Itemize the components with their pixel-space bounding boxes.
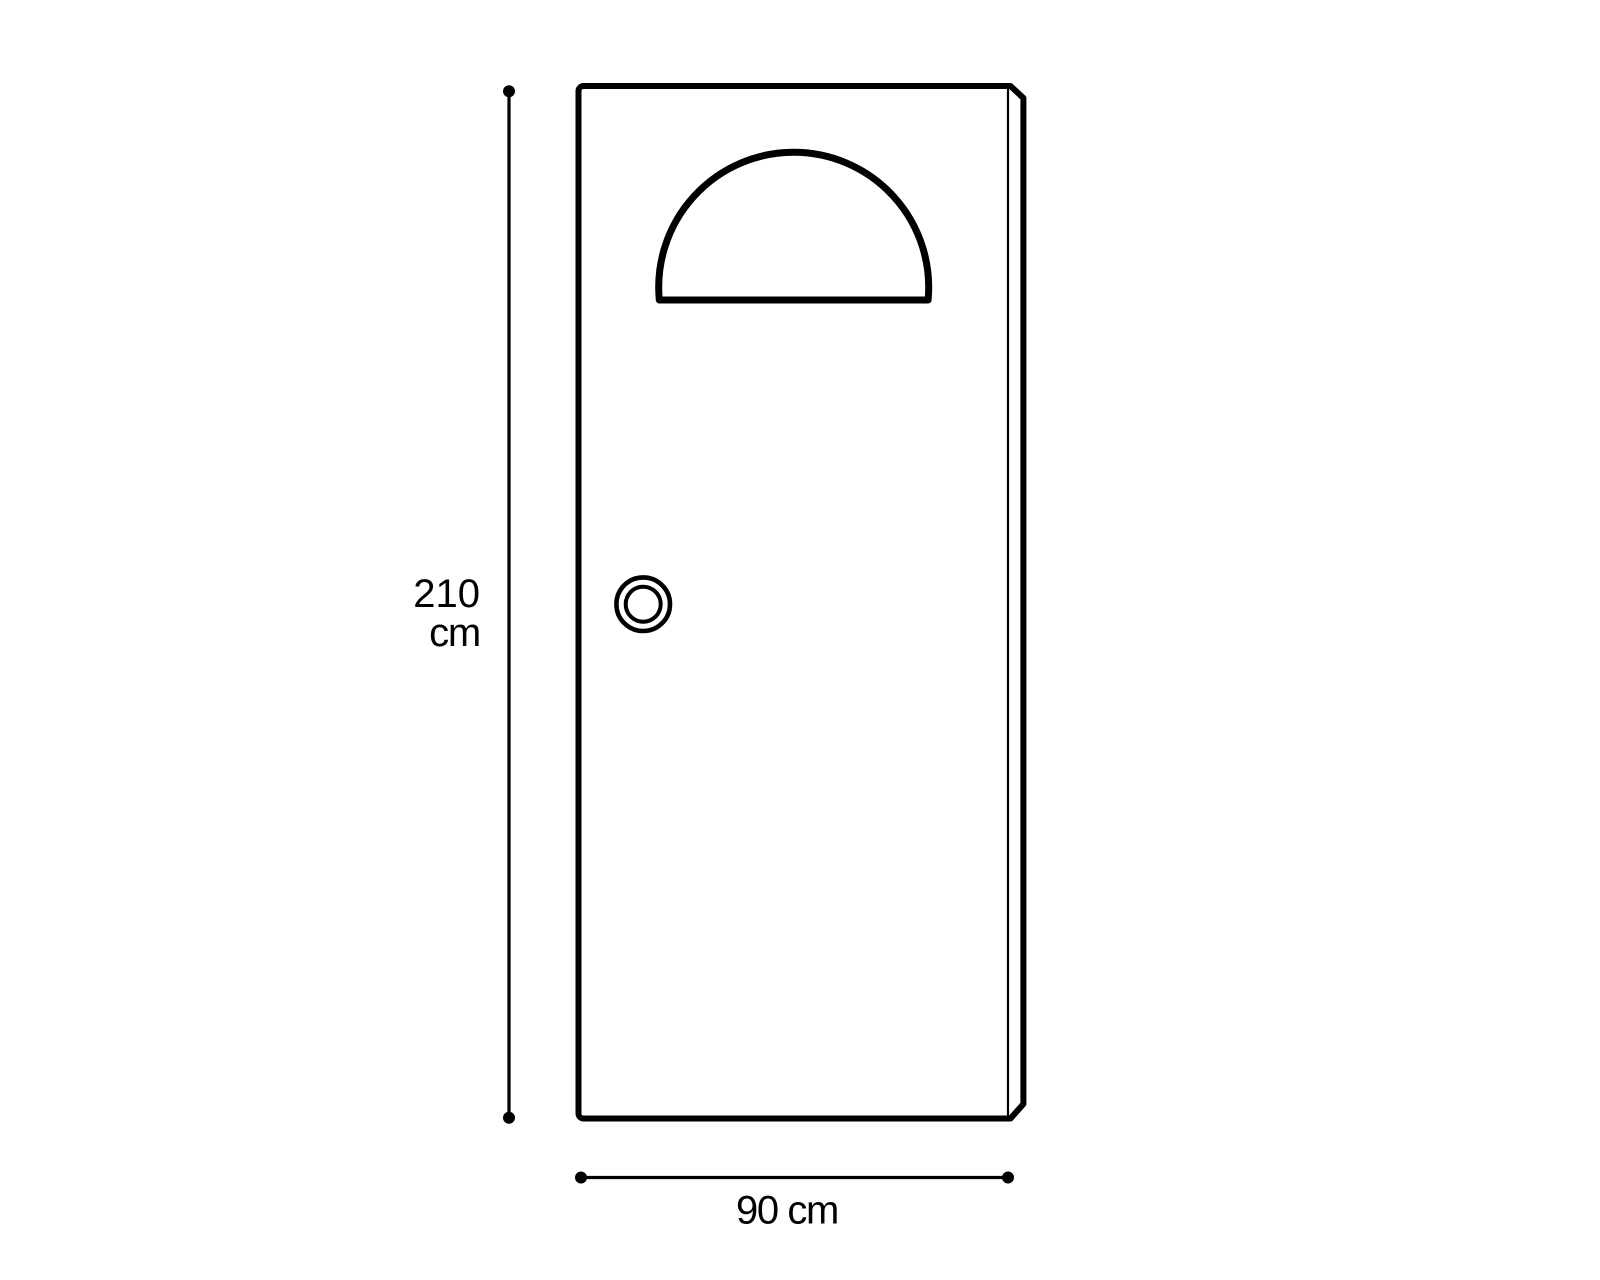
svg-text:90 cm: 90 cm: [736, 1189, 838, 1233]
svg-text:cm: cm: [429, 611, 480, 655]
svg-text:210: 210: [413, 572, 480, 616]
